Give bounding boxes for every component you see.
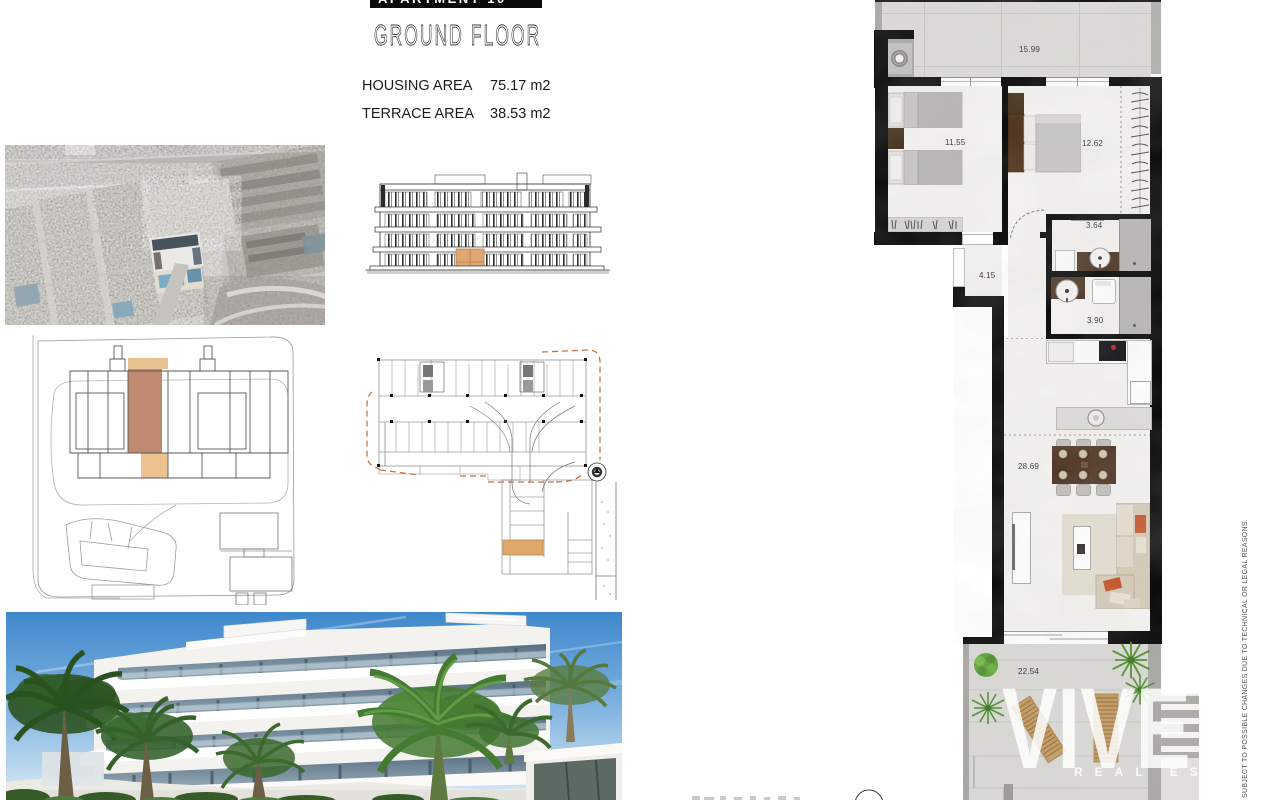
svg-text:GROUND FLOOR: GROUND FLOOR bbox=[374, 20, 541, 52]
